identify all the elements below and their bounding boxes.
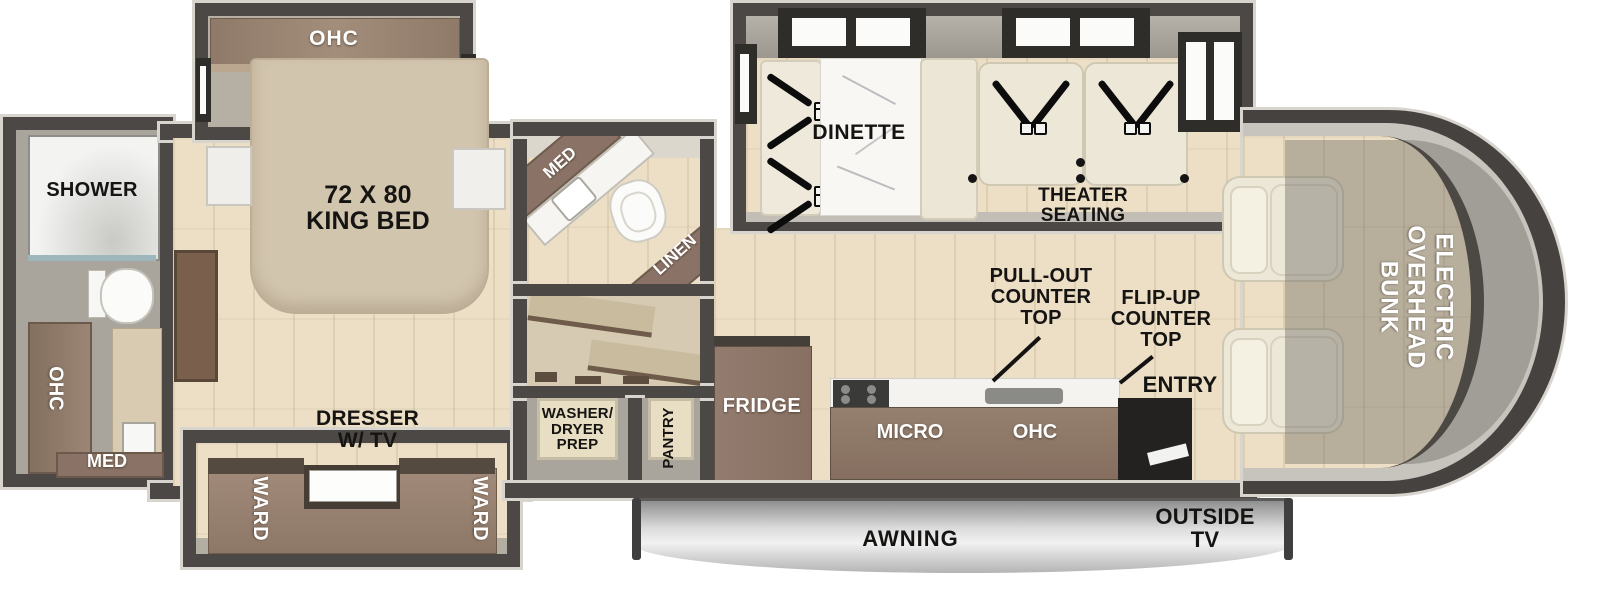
overhead-bunk-label: ELECTRIC OVERHEAD BUNK <box>1375 199 1458 395</box>
king-bed-label: 72 X 80 KING BED <box>268 182 468 234</box>
wall <box>513 122 527 497</box>
awning-end-cap <box>632 498 641 560</box>
bed-ohc-label: OHC <box>210 28 458 50</box>
dinette-window <box>1002 8 1150 58</box>
dinette-label: DINETTE <box>804 122 914 144</box>
toilet-icon <box>100 268 154 324</box>
closet-base <box>623 376 649 384</box>
closet-base <box>535 372 557 382</box>
cupholder <box>968 174 977 183</box>
kitchen-cabinet <box>830 407 1142 480</box>
theater-label: THEATER SEATING <box>1018 186 1148 226</box>
cupholder <box>1076 158 1085 167</box>
dinette-window <box>778 8 926 58</box>
wall <box>513 386 714 398</box>
awning-end-cap <box>1284 498 1293 560</box>
ward-right-label: WARD <box>468 464 490 554</box>
theater-seat <box>1084 62 1188 186</box>
kitchen-ohc-label: OHC <box>990 422 1080 443</box>
fridge-label: FRIDGE <box>712 396 812 417</box>
wall <box>700 122 714 497</box>
front-side-window <box>1178 32 1242 132</box>
theater-seat <box>978 62 1084 186</box>
bedroom-window-left <box>196 58 211 122</box>
outside-tv-label: OUTSIDE TV <box>1138 506 1272 552</box>
flipup-counter-label: FLIP-UP COUNTER TOP <box>1086 288 1236 350</box>
stove <box>833 380 889 407</box>
bath-med-label: MED <box>52 452 162 471</box>
shower-label: SHOWER <box>24 180 160 201</box>
closet-base <box>575 376 601 384</box>
cupholder <box>1180 174 1189 183</box>
rv-floorplan: SHOWER OHC MED OHC 72 X 80 KING BED <box>0 0 1600 602</box>
dinette-bench <box>920 58 978 220</box>
washer-label: WASHER/ DRYER PREP <box>527 406 628 453</box>
entry-label: ENTRY <box>1128 374 1232 397</box>
wardrobe-closet <box>527 296 700 386</box>
nightstand <box>206 146 252 206</box>
cupholder <box>1076 174 1085 183</box>
bath-ohc-label: OHC <box>45 356 66 420</box>
side-window <box>735 44 757 124</box>
entry-door <box>1118 398 1192 480</box>
mid-bathroom: MED LINEN <box>527 136 700 284</box>
wall <box>513 284 714 296</box>
wall <box>628 398 642 486</box>
bedroom-tv-fireplace <box>174 250 218 382</box>
rear-bath-slideout: SHOWER OHC MED <box>3 117 173 487</box>
shower-glass <box>28 255 156 261</box>
dresser-label: DRESSER W/ TV <box>295 408 440 452</box>
wall <box>505 483 1257 498</box>
bedroom-tv <box>309 470 397 502</box>
nightstand <box>452 148 506 210</box>
closet-door <box>527 296 655 338</box>
wall <box>513 122 714 136</box>
micro-label: MICRO <box>855 422 965 443</box>
ward-left-label: WARD <box>248 464 270 554</box>
pantry-label: PANTRY <box>661 398 681 478</box>
awning-label: AWNING <box>838 528 983 551</box>
kitchen-sink <box>985 388 1063 404</box>
